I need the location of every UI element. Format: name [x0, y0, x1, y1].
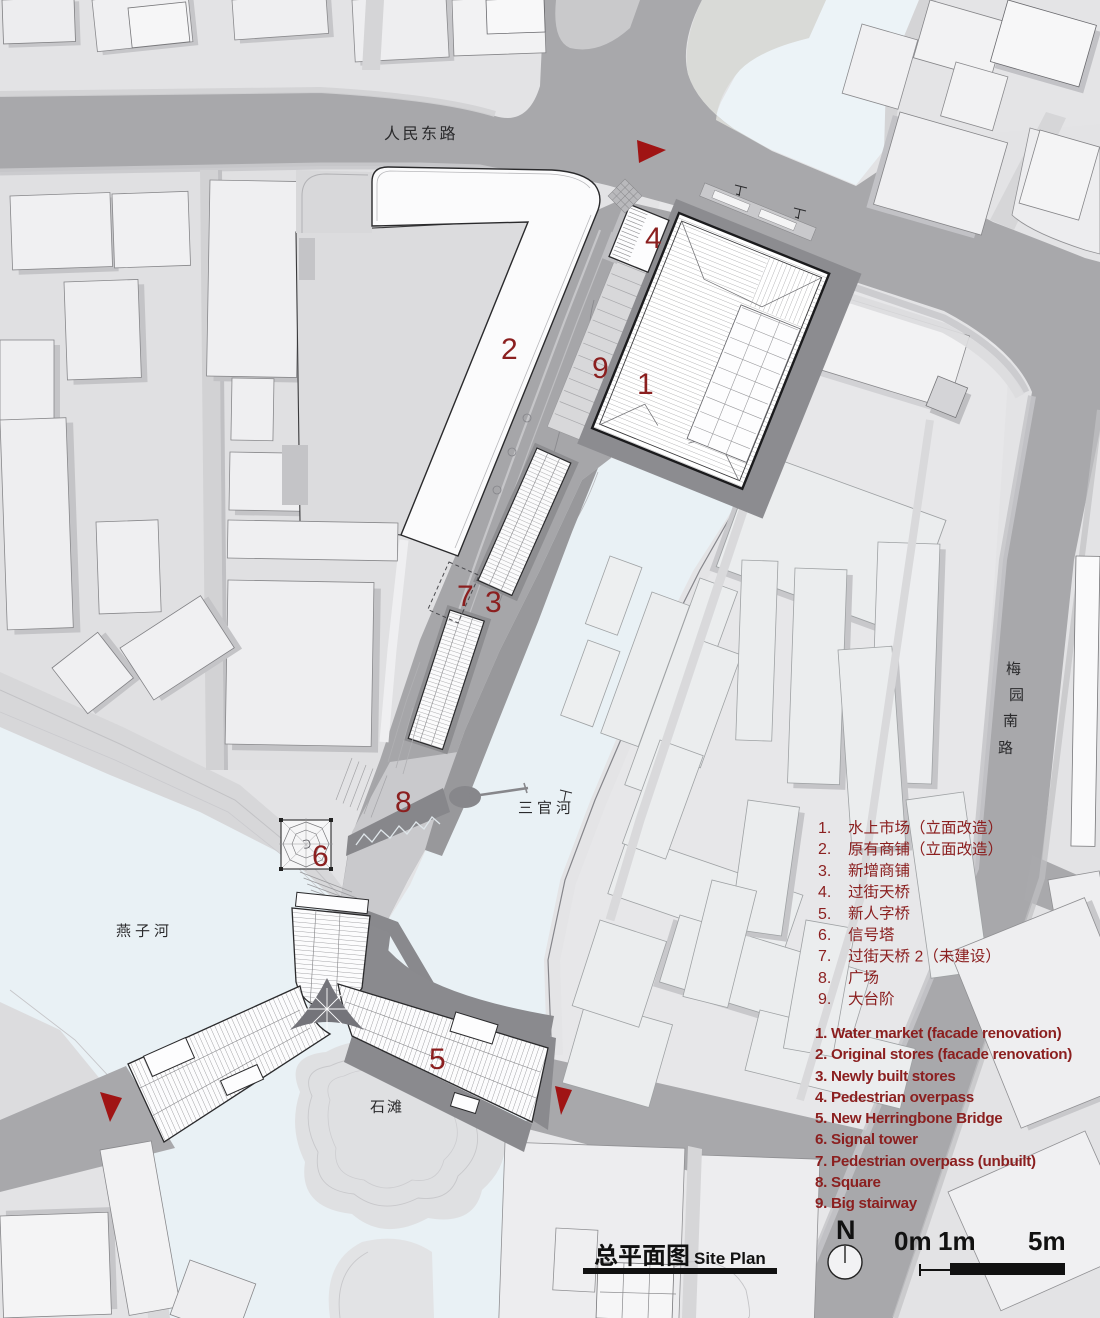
svg-text:N: N: [836, 1215, 856, 1245]
svg-text:9. Big stairway: 9. Big stairway: [815, 1195, 918, 1212]
svg-text:2: 2: [915, 948, 924, 965]
svg-text:7. Pedestrian overpass (unbuil: 7. Pedestrian overpass (unbuilt): [815, 1153, 1036, 1170]
svg-text:3: 3: [485, 586, 502, 619]
svg-text:0m: 0m: [894, 1226, 932, 1256]
svg-text:4.: 4.: [818, 884, 831, 901]
svg-text:9.: 9.: [818, 991, 831, 1008]
svg-text:5.: 5.: [818, 906, 831, 923]
svg-text:1: 1: [637, 368, 654, 401]
svg-text:1.: 1.: [818, 820, 831, 837]
svg-text:7.: 7.: [818, 948, 831, 965]
svg-text:7: 7: [457, 580, 474, 613]
svg-text:4: 4: [645, 222, 662, 255]
svg-text:8: 8: [395, 786, 412, 819]
svg-text:4. Pedestrian overpass: 4. Pedestrian overpass: [815, 1089, 974, 1106]
svg-text:8. Square: 8. Square: [815, 1174, 881, 1191]
svg-text:8.: 8.: [818, 970, 831, 987]
svg-text:3. Newly built stores: 3. Newly built stores: [815, 1068, 956, 1085]
svg-text:6. Signal tower: 6. Signal tower: [815, 1131, 918, 1148]
svg-text:3.: 3.: [818, 863, 831, 880]
svg-text:5m: 5m: [1028, 1226, 1066, 1256]
svg-text:2: 2: [501, 333, 518, 366]
svg-text:Site Plan: Site Plan: [694, 1249, 766, 1268]
svg-text:1. Water market (facade renova: 1. Water market (facade renovation): [815, 1025, 1062, 1042]
svg-text:2. Original stores (facade ren: 2. Original stores (facade renovation): [815, 1046, 1072, 1063]
svg-text:6.: 6.: [818, 927, 831, 944]
svg-text:6: 6: [312, 840, 329, 873]
svg-text:5. New Herringbone Bridge: 5. New Herringbone Bridge: [815, 1110, 1002, 1127]
svg-text:1m: 1m: [938, 1226, 976, 1256]
svg-text:2.: 2.: [818, 841, 831, 858]
svg-text:9: 9: [592, 352, 609, 385]
svg-text:5: 5: [429, 1043, 446, 1076]
